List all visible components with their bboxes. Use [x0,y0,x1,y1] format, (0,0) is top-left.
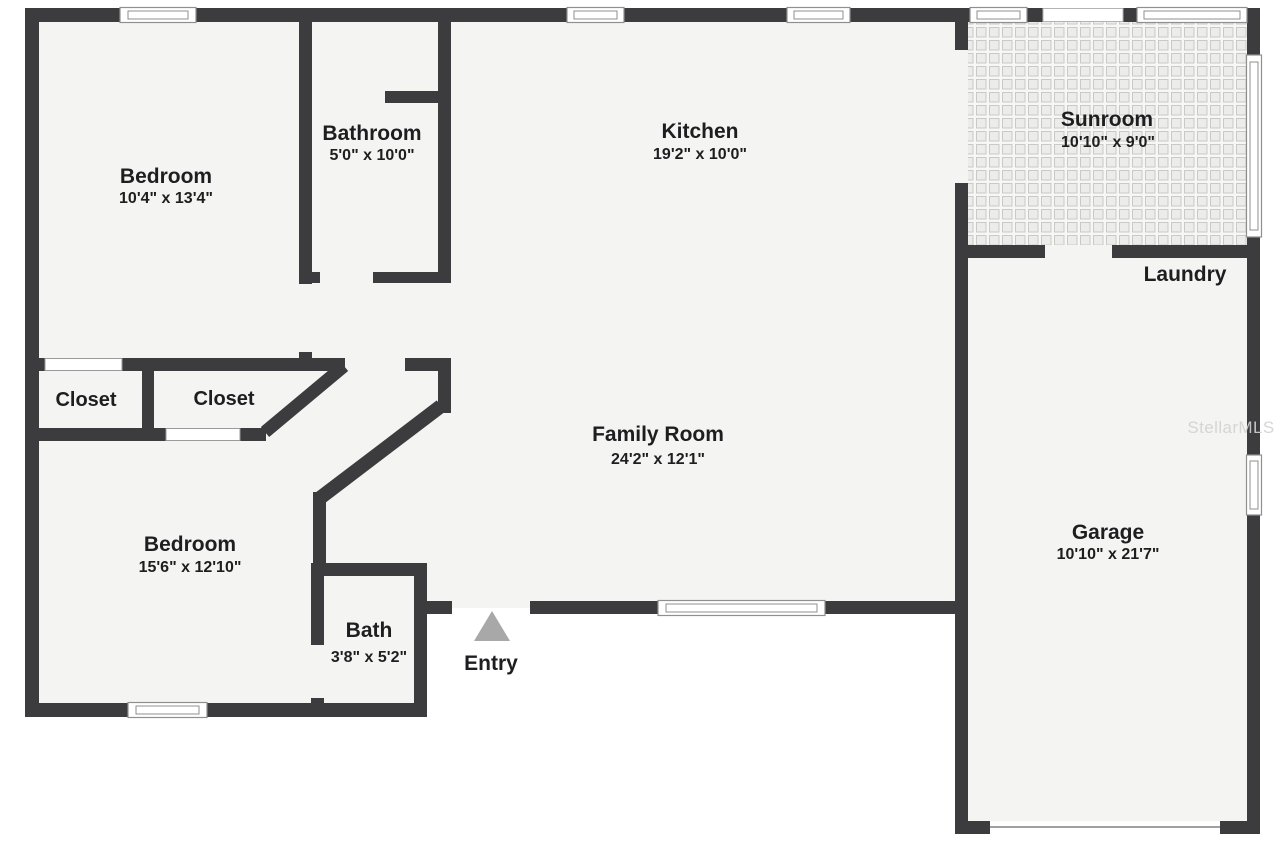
door-closet-left [45,359,122,371]
wall-closet-right-bottom-a [154,428,166,441]
wall-bed1-bath [299,22,312,284]
label-bathroom: Bathroom [322,122,421,145]
wall-family-bottom-b [530,601,658,614]
dims-bedroom-top: 10'4" x 13'4" [119,190,213,207]
label-kitchen: Kitchen [661,120,738,143]
label-laundry: Laundry [1144,263,1227,286]
wall-kitchen-sunroom-stub [955,8,968,50]
label-entry: Entry [464,652,518,675]
floor-plan: Bedroom 10'4" x 13'4" Bathroom 5'0" x 10… [0,0,1280,853]
entry-arrow-icon [474,611,510,641]
dims-family-room: 24'2" x 12'1" [611,451,705,468]
wall-family-bottom-c [825,601,961,614]
wall-right-a [1247,8,1260,55]
window-kitchen-1 [567,8,624,23]
label-closet-left: Closet [55,389,116,411]
wall-bottom-left [25,703,427,717]
wall-family-bottom-a [414,601,452,614]
wall-closet-top-a [25,358,45,371]
garage-door [990,821,1220,834]
wall-bathroom-bottom-a [312,272,320,283]
wall-bath-top [311,563,427,576]
label-closet-right: Closet [193,388,254,410]
floor-plan-page: Bedroom 10'4" x 13'4" Bathroom 5'0" x 10… [0,0,1280,853]
door-closet-right [166,429,240,441]
wall-bathroom-stub [385,91,451,103]
window-sunroom-top-2 [1137,8,1247,23]
label-bedroom-top: Bedroom [120,165,212,188]
wall-bath-left-b [311,698,324,717]
dims-bedroom-bottom: 15'6" x 12'10" [139,559,242,576]
wall-closet-top-b [122,358,345,371]
wall-house-garage [955,183,968,834]
dims-bathroom: 5'0" x 10'0" [329,147,414,164]
label-garage: Garage [1072,521,1144,544]
window-sunroom-right [1247,55,1262,237]
window-kitchen-2 [787,8,850,23]
window-bedroom-bottom [128,703,207,718]
window-bedroom-top [120,8,196,23]
label-family-room: Family Room [592,423,724,446]
door-garage-side [1247,455,1262,515]
window-family-room [658,601,825,616]
dims-sunroom: 10'10" x 9'0" [1061,134,1155,151]
dims-kitchen: 19'2" x 10'0" [653,146,747,163]
wall-laundry-top-b [1112,245,1260,258]
wall-bath-left-a [311,563,324,645]
label-bath: Bath [346,619,393,642]
watermark: StellarMLS [1187,418,1274,437]
wall-bathroom-kitchen [438,22,451,283]
wall-garage-bottom-a [955,821,990,834]
label-bedroom-bottom: Bedroom [144,533,236,556]
dims-garage: 10'10" x 21'7" [1057,546,1160,563]
wall-right-c [1247,515,1260,834]
dims-bath: 3'8" x 5'2" [331,649,407,666]
window-sunroom-top-screen [1043,9,1123,22]
wall-closet-left-bottom [25,428,154,441]
wall-bathroom-bottom-b [373,272,451,283]
window-sunroom-top-1 [970,8,1027,23]
wall-laundry-top-a [955,245,1045,258]
wall-bath-right [414,563,427,717]
wall-garage-bottom-b [1220,821,1260,834]
wall-closet-right-bottom-b [240,428,266,441]
label-sunroom: Sunroom [1061,108,1153,131]
